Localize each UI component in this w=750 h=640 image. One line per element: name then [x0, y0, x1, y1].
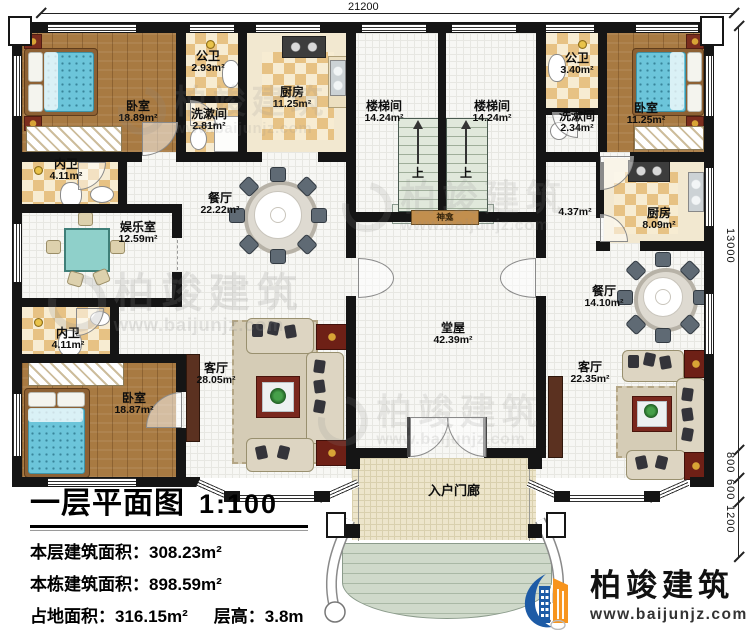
room-name: 公卫 — [560, 52, 593, 65]
plan-scale: 1:100 — [199, 489, 278, 520]
light-fixture — [34, 166, 43, 175]
dining-chair — [270, 249, 286, 264]
brand-text: 柏竣建筑 www.baijunjz.com — [590, 570, 748, 624]
wall — [238, 33, 247, 152]
window — [13, 224, 21, 282]
chair — [78, 212, 93, 226]
side-table — [316, 324, 348, 350]
cushion — [635, 455, 648, 470]
room-name: 餐厅 — [200, 192, 239, 205]
tv-cabinet — [548, 376, 563, 458]
wall — [176, 354, 186, 392]
room-label-entertainment: 娱乐室12.59m² — [118, 221, 157, 246]
dining-chair — [311, 208, 327, 223]
wall — [536, 222, 546, 258]
stair-up-label: 上 — [412, 164, 424, 181]
bed-sheet — [670, 52, 684, 110]
cushion — [252, 324, 263, 337]
wall — [318, 152, 348, 162]
room-area: 3.40m² — [560, 65, 593, 77]
room-area: 22.35m² — [570, 374, 609, 386]
bay-post — [314, 491, 330, 502]
window — [705, 56, 713, 116]
side-table — [316, 440, 348, 466]
room-label-ensuite-tl: 内卫4.11m² — [50, 158, 83, 183]
wall — [346, 296, 356, 458]
room-name: 楼梯间 — [472, 100, 511, 113]
room-label-kitchen-l: 厨房11.25m² — [273, 86, 312, 111]
wardrobe — [26, 126, 122, 152]
wall — [438, 33, 446, 222]
dim-top-width: 21200 — [348, 1, 379, 13]
title-underline — [30, 525, 308, 528]
room-label-bedroom-tl: 卧室18.89m² — [118, 100, 157, 125]
bed-sheet — [44, 52, 58, 110]
stair-arrow-line — [417, 128, 419, 164]
porch-post — [346, 453, 360, 469]
info-footprint-and-height: 占地面积：316.15m²层高：3.8m — [30, 602, 308, 627]
room-label-stair-r: 楼梯间14.24m² — [472, 100, 511, 125]
room-area: 4.11m² — [50, 171, 83, 183]
window — [705, 294, 713, 354]
pillow — [28, 392, 56, 407]
brand-url: www.baijunjz.com — [590, 606, 748, 624]
room-label-ensuite-bl: 内卫4.11m² — [52, 327, 85, 352]
room-area: 22.22m² — [200, 205, 239, 217]
wall — [118, 152, 127, 210]
room-label-porch: 入户门廊 — [428, 480, 480, 499]
room-area: 12.59m² — [118, 234, 157, 246]
brand-name: 柏竣建筑 — [590, 570, 748, 603]
dim-right-600: 600 — [724, 479, 736, 500]
wall — [596, 241, 610, 251]
room-label-bedroom-bl: 卧室18.87m² — [114, 392, 153, 417]
sink — [90, 186, 114, 203]
floor-plan-page: 上 上 神龛 — [0, 0, 750, 640]
room-label-bath-tr: 公卫3.40m² — [560, 52, 593, 77]
cushion — [313, 359, 326, 373]
window — [13, 56, 21, 116]
wardrobe — [28, 362, 124, 386]
pillow — [687, 52, 702, 82]
brand-block: 柏竣建筑 www.baijunjz.com — [518, 570, 748, 630]
wall — [536, 33, 546, 222]
room-area: 8.09m² — [642, 220, 675, 232]
room-label-bath-tl: 公卫2.93m² — [191, 50, 224, 75]
bay-post — [554, 491, 570, 502]
kitchen-sink — [330, 60, 346, 96]
room-area: 28.05m² — [196, 375, 235, 387]
porch-post — [346, 524, 360, 538]
room-name: 公卫 — [191, 50, 224, 63]
bay-post — [644, 491, 660, 502]
room-name: 卧室 — [627, 102, 666, 115]
porch-post — [528, 524, 542, 538]
room-label-hall: 堂屋42.39m² — [433, 322, 472, 347]
window — [48, 24, 136, 32]
info-value: 316.15m² — [115, 607, 188, 626]
cushion — [659, 355, 672, 370]
cushion — [628, 355, 639, 368]
title-underline-thin — [30, 530, 308, 531]
plant — [644, 404, 658, 418]
room-label-wash-tl: 洗漱间2.81m² — [191, 108, 227, 133]
dim-right-height: 13000 — [724, 228, 736, 264]
stove — [282, 36, 326, 58]
cushion — [284, 324, 297, 339]
wall — [12, 204, 182, 213]
wall — [598, 33, 607, 152]
room-name: 客厅 — [196, 362, 235, 375]
info-label: 占地面积： — [30, 607, 115, 626]
pillow — [687, 84, 702, 112]
room-area: 18.89m² — [118, 113, 157, 125]
wall — [536, 296, 546, 458]
wall — [176, 33, 186, 152]
room-area: 2.81m² — [191, 121, 227, 133]
wall-bottom-right-wing — [690, 477, 714, 487]
room-label-dining-r: 餐厅14.10m² — [584, 285, 623, 310]
room-label-living-r: 客厅22.35m² — [570, 361, 609, 386]
room-label-kitchen-r: 厨房8.09m² — [642, 207, 675, 232]
kitchen-sink — [688, 172, 704, 212]
cushion — [681, 407, 694, 421]
room-name: 洗漱间 — [559, 110, 595, 123]
stove — [628, 160, 670, 182]
dining-chair — [270, 167, 286, 182]
wall — [630, 152, 714, 162]
pillow — [28, 84, 43, 112]
room-area: 14.24m² — [364, 113, 403, 125]
window — [256, 24, 320, 32]
info-value: 308.23m² — [149, 543, 222, 562]
room-name: 内卫 — [50, 158, 83, 171]
room-area: 11.25m² — [273, 99, 312, 111]
room-label-dining-l: 餐厅22.22m² — [200, 192, 239, 217]
corner-pillar — [8, 16, 32, 46]
room-name: 洗漱间 — [191, 108, 227, 121]
info-building-area: 本栋建筑面积：898.59m² — [30, 570, 308, 595]
wall — [346, 33, 356, 222]
cushion — [255, 445, 268, 460]
dim-right-800: 800 — [724, 452, 736, 473]
light-fixture — [206, 40, 215, 49]
plan-title: 一层平面图 — [30, 478, 185, 522]
room-name: 餐厅 — [584, 285, 623, 298]
dining-chair — [655, 252, 671, 267]
porch-post — [528, 453, 542, 469]
room-area: 4.11m² — [52, 340, 85, 352]
cushion — [313, 379, 326, 393]
wall — [12, 354, 182, 363]
wall — [346, 222, 356, 258]
cushion — [681, 387, 694, 401]
bay-window-right-b — [563, 495, 649, 503]
title-block: 一层平面图 1:100 本层建筑面积：308.23m² 本栋建筑面积：898.5… — [30, 478, 308, 627]
window — [452, 24, 516, 32]
room-label-stair-l: 楼梯间14.24m² — [364, 100, 403, 125]
window — [636, 24, 698, 32]
room-area: 42.39m² — [433, 335, 472, 347]
room-area: 14.24m² — [472, 113, 511, 125]
wall — [640, 241, 714, 251]
room-name: 娱乐室 — [118, 221, 157, 234]
dim-right-1200: 1200 — [724, 505, 736, 533]
area-label-corridor-r: 4.37m² — [558, 206, 591, 218]
room-label-wash-tr: 洗漱间2.34m² — [559, 110, 595, 135]
room-name: 厨房 — [273, 86, 312, 99]
bed-sheet — [28, 408, 83, 422]
brand-logo-icon — [518, 570, 582, 630]
wall — [172, 272, 182, 302]
stair-arrow-line — [465, 128, 467, 164]
pillow — [57, 392, 85, 407]
stair-arrow-head — [413, 120, 423, 129]
window — [546, 24, 594, 32]
dim-line-top — [40, 13, 734, 14]
info-value: 3.8m — [265, 607, 304, 626]
room-area: 2.93m² — [191, 63, 224, 75]
window — [190, 24, 234, 32]
info-value: 898.59m² — [149, 575, 222, 594]
light-fixture — [578, 40, 587, 49]
wall — [172, 213, 182, 238]
plan-title-row: 一层平面图 1:100 — [30, 478, 308, 522]
room-area: 14.10m² — [584, 298, 623, 310]
room-name: 客厅 — [570, 361, 609, 374]
game-table — [64, 228, 110, 272]
room-name: 堂屋 — [433, 322, 472, 335]
wall — [536, 152, 600, 162]
wall — [176, 152, 262, 162]
dining-table-center — [655, 289, 671, 305]
plant — [270, 388, 286, 404]
cushion — [681, 427, 694, 442]
dining-chair — [655, 328, 671, 343]
room-area: 11.25m² — [627, 115, 666, 127]
room-label-living-l: 客厅28.05m² — [196, 362, 235, 387]
window — [362, 24, 426, 32]
dining-table-center — [270, 207, 286, 223]
chair — [46, 240, 61, 254]
corner-pillar — [700, 16, 724, 46]
window — [13, 394, 21, 456]
room-label-bedroom-tr: 卧室11.25m² — [627, 102, 666, 127]
cushion — [313, 399, 326, 414]
light-fixture — [34, 318, 43, 327]
wall — [12, 298, 182, 307]
room-name: 卧室 — [114, 392, 153, 405]
stair-up-label: 上 — [460, 164, 472, 181]
room-area: 18.87m² — [114, 405, 153, 417]
step-pillar — [546, 512, 566, 538]
stair-arrow-head — [461, 120, 471, 129]
wall — [110, 307, 119, 357]
shrine: 神龛 — [411, 210, 479, 225]
pillow — [28, 52, 43, 82]
room-name: 楼梯间 — [364, 100, 403, 113]
step-pillar — [326, 512, 346, 538]
info-label: 本层建筑面积： — [30, 543, 149, 562]
opening-dash — [177, 240, 179, 270]
room-area: 2.34m² — [559, 123, 595, 135]
room-name: 卧室 — [118, 100, 157, 113]
info-label: 本栋建筑面积： — [30, 575, 149, 594]
info-floor-area: 本层建筑面积：308.23m² — [30, 538, 308, 563]
room-name: 内卫 — [52, 327, 85, 340]
wardrobe — [634, 126, 704, 150]
info-label: 层高： — [214, 607, 265, 626]
room-name: 厨房 — [642, 207, 675, 220]
window — [705, 168, 713, 226]
